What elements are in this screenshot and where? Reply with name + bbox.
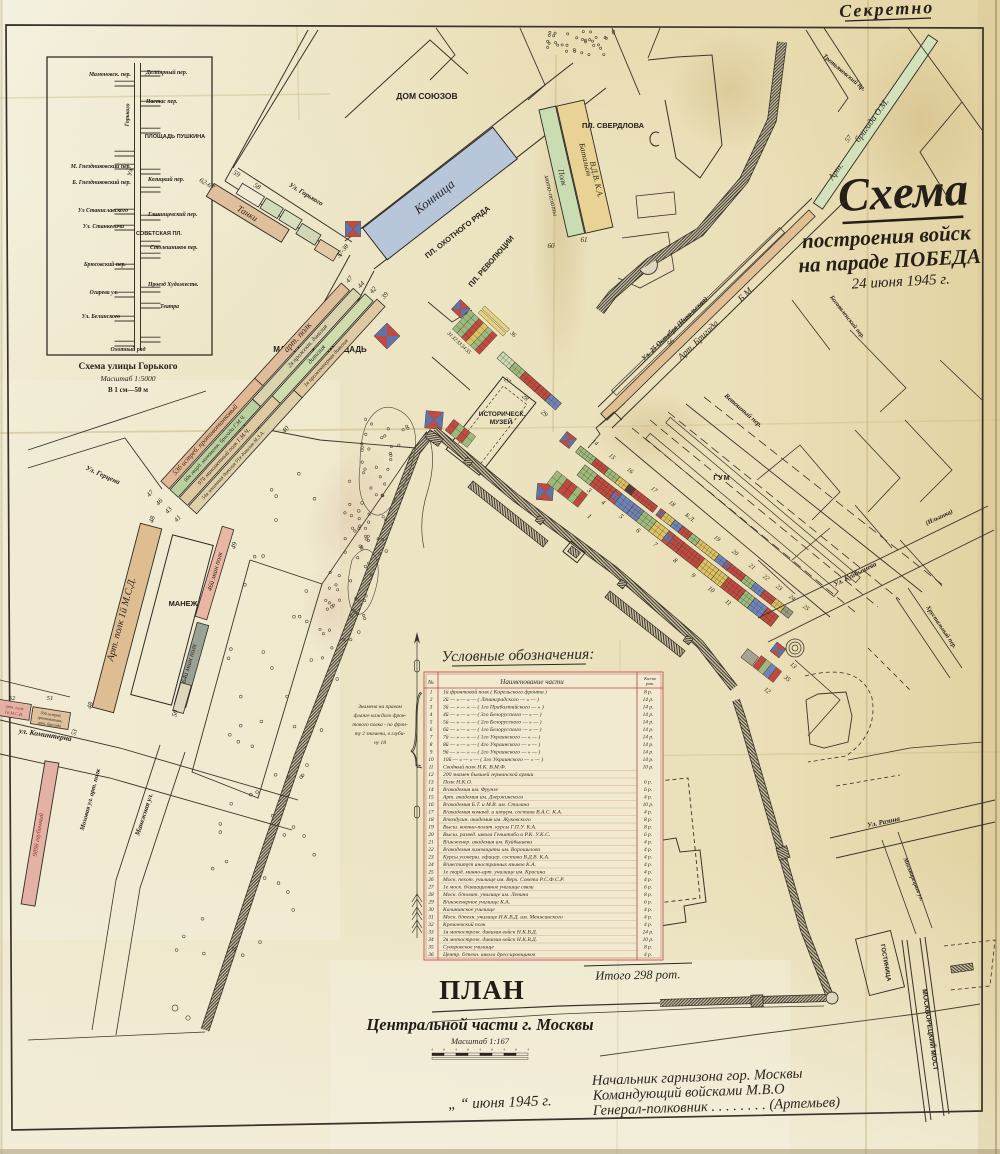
- svg-text:3: 3: [430, 705, 433, 711]
- svg-text:6 р.: 6 р.: [644, 780, 652, 786]
- svg-text:7: 7: [430, 735, 433, 741]
- svg-text:27: 27: [428, 885, 434, 891]
- svg-text:4 р.: 4 р.: [644, 855, 652, 861]
- svg-text:Дегтярный пер.: Дегтярный пер.: [145, 69, 187, 76]
- svg-text:4: 4: [431, 1048, 433, 1052]
- svg-text:Столешников пер.: Столешников пер.: [150, 245, 198, 251]
- svg-text:14: 14: [428, 786, 434, 793]
- svg-text:200 знамен бывшей германской а: 200 знамен бывшей германской армии: [443, 771, 534, 778]
- svg-text:2я мотострелк. дивизия войск: 2я мотострелк. дивизия войск Н.К.В.Д.: [443, 936, 537, 943]
- svg-text:Центральной части г. Москвы: Центральной части г. Москвы: [365, 1015, 593, 1034]
- svg-text:Сводный полк Н.К. В.М.Ф.: Сводный полк Н.К. В.М.Ф.: [443, 764, 506, 771]
- svg-text:1й фронтовой полк ( Карельског: 1й фронтовой полк ( Карельского фронта ): [443, 689, 547, 696]
- svg-text:Моск. пехот. училище им. Верх.: Моск. пехот. училище им. Верх. Совета Р.…: [442, 877, 564, 883]
- svg-text:В/академия им. Фрунзе: В/академия им. Фрунзе: [443, 786, 498, 793]
- svg-text:6 р.: 6 р.: [644, 885, 652, 891]
- svg-text:21: 21: [428, 840, 434, 846]
- svg-text:рот.: рот.: [645, 681, 654, 686]
- svg-text:4 р.: 4 р.: [644, 862, 652, 868]
- svg-text:22: 22: [428, 847, 434, 853]
- svg-text:ПЛОЩАДЬ ПУШКИНА: ПЛОЩАДЬ ПУШКИНА: [145, 134, 205, 140]
- svg-text:28: 28: [428, 892, 434, 898]
- svg-text:8: 8: [515, 1048, 517, 1052]
- svg-text:ГУМ: ГУМ: [713, 475, 730, 482]
- svg-text:4: 4: [430, 711, 433, 718]
- svg-text:ту 2 знамени, в глуби-: ту 2 знамени, в глуби-: [355, 730, 406, 737]
- svg-text:ПЛ. СВЕРДЛОВА: ПЛ. СВЕРДЛОВА: [582, 121, 645, 130]
- svg-text:24 р.: 24 р.: [643, 930, 654, 936]
- svg-text:12: 12: [428, 772, 434, 778]
- svg-text:10й — » — « — ( 3го Украинск: 10й — » — « — ( 3го Украинского — » — ): [443, 756, 543, 763]
- svg-text:В/академия химзащиты им. Во: В/академия химзащиты им. Ворошилова: [443, 846, 540, 853]
- svg-text:10 р.: 10 р.: [643, 765, 654, 771]
- svg-text:ДОМ СОЮЗОВ: ДОМ СОЮЗОВ: [396, 91, 457, 101]
- svg-text:МАНЕЖ: МАНЕЖ: [169, 599, 198, 608]
- svg-text:11: 11: [429, 765, 434, 771]
- svg-text:10 р.: 10 р.: [643, 802, 654, 808]
- svg-text:14 р.: 14 р.: [643, 735, 654, 741]
- svg-text:5: 5: [430, 720, 433, 726]
- svg-text:1е моск. б/авиационное училищ: 1е моск. б/авиационное училище связи: [443, 884, 534, 891]
- svg-text:Проезд Художеств.: Проезд Художеств.: [147, 281, 198, 288]
- svg-text:2: 2: [430, 697, 433, 703]
- svg-text:14 р.: 14 р.: [643, 757, 654, 763]
- svg-text:18: 18: [428, 817, 434, 823]
- svg-text:Высш. развед. школа Генштаба и: Высш. развед. школа Генштаба и Р.К. У.К.…: [443, 831, 550, 838]
- svg-text:Масштаб 1:167: Масштаб 1:167: [450, 1036, 510, 1046]
- svg-text:14 р.: 14 р.: [643, 727, 654, 733]
- svg-text:тового полка - по фрон-: тового полка - по фрон-: [352, 721, 408, 728]
- svg-text:В/инженерное училище К.А.: В/инженерное училище К.А.: [443, 900, 510, 906]
- svg-text:Брюсовский пер.: Брюсовский пер.: [83, 261, 126, 268]
- svg-text:8 р.: 8 р.: [644, 817, 652, 823]
- svg-text:Моск. б/техн. училище Н.К.В.Д: Моск. б/техн. училище Н.К.В.Д. им. Менжи…: [442, 914, 563, 921]
- svg-text:26: 26: [428, 877, 434, 883]
- svg-text:31: 31: [428, 915, 434, 921]
- svg-text:4 р.: 4 р.: [644, 907, 652, 913]
- svg-text:17: 17: [428, 810, 434, 816]
- svg-text:1е гвард. минно-арт. училище: 1е гвард. минно-арт. училище им. Красина: [443, 869, 545, 876]
- svg-text:36: 36: [428, 952, 434, 958]
- svg-text:Центр. б/техн. школа дрессир: Центр. б/техн. школа дрессировщиков: [442, 951, 536, 958]
- svg-text:Знамена на правом: Знамена на правом: [358, 704, 402, 710]
- svg-text:В 1 см—50 м: В 1 см—50 м: [108, 386, 148, 394]
- svg-text:Курсы усоверш. офицер. состава: Курсы усоверш. офицер. состава В.Д.В. К.…: [442, 854, 549, 861]
- svg-text:33: 33: [428, 930, 434, 936]
- svg-text:4: 4: [527, 1048, 529, 1052]
- svg-text:25: 25: [428, 870, 434, 876]
- svg-text:Горького: Горького: [125, 103, 132, 127]
- svg-text:Итого 298 рот.: Итого 298 рот.: [594, 967, 680, 983]
- svg-text:9й — » — » — ( 2го Украинск: 9й — » — » — ( 2го Украинского — » — ): [443, 749, 540, 756]
- svg-text:Суворовское училище: Суворовское училище: [443, 945, 494, 951]
- svg-text:30: 30: [428, 907, 434, 913]
- svg-text:2й — « — » — ( Ленинградско: 2й — « — » — ( Ленинградского — « — ): [443, 696, 539, 703]
- svg-text:Охотный ряд: Охотный ряд: [110, 346, 145, 353]
- svg-text:14 р.: 14 р.: [643, 720, 654, 726]
- svg-text:4: 4: [503, 1048, 505, 1052]
- svg-text:Условные обозначения:: Условные обозначения:: [441, 646, 594, 666]
- svg-text:8: 8: [491, 1048, 493, 1052]
- svg-text:61: 61: [581, 236, 588, 244]
- svg-text:Глинищевский пер.: Глинищевский пер.: [147, 211, 197, 218]
- svg-text:4 р.: 4 р.: [644, 922, 652, 928]
- svg-text:16: 16: [428, 802, 434, 808]
- svg-text:60: 60: [548, 242, 556, 250]
- svg-text:4й — » — » — ( 3го Белорусс: 4й — » — » — ( 3го Белорусского — « — ): [443, 711, 542, 718]
- svg-text:5й — « — » — ( 2го Белорусс: 5й — « — » — ( 2го Белорусского — » — ): [443, 719, 542, 726]
- svg-text:14 р.: 14 р.: [643, 712, 654, 718]
- svg-text:10: 10: [428, 757, 434, 763]
- svg-text:8: 8: [443, 1048, 445, 1052]
- svg-text:20: 20: [428, 832, 434, 838]
- svg-text:6 р.: 6 р.: [644, 832, 652, 838]
- svg-text:14 р.: 14 р.: [643, 742, 654, 748]
- svg-text:Театра: Театра: [160, 304, 179, 310]
- svg-text:Моск. б/полит. училище им.: Моск. б/полит. училище им. Ленина: [442, 891, 528, 898]
- svg-text:10 р.: 10 р.: [643, 937, 654, 943]
- svg-text:В/институт иностранных языко: В/институт иностранных языков К.А.: [443, 862, 536, 868]
- svg-text:4 р.: 4 р.: [644, 847, 652, 853]
- svg-text:Высш. военно-полит. курсы Г.П: Высш. военно-полит. курсы Г.П.У. К.А.: [443, 825, 536, 831]
- svg-text:6 р.: 6 р.: [644, 787, 652, 793]
- svg-text:Арт. академия им. Дзержинско: Арт. академия им. Дзержинского: [442, 794, 523, 801]
- svg-text:32: 32: [428, 922, 434, 928]
- svg-text:№: №: [427, 680, 434, 686]
- svg-text:В/инженер. академия им. Куйб: В/инженер. академия им. Куйбышева: [443, 839, 532, 846]
- svg-text:Ул Станиславского: Ул Станиславского: [78, 208, 128, 214]
- svg-text:8: 8: [467, 1048, 469, 1052]
- svg-text:Б. Гнездниковский пер.: Б. Гнездниковский пер.: [71, 179, 131, 186]
- svg-text:14 р.: 14 р.: [643, 750, 654, 756]
- svg-text:Калининское училище: Калининское училище: [442, 907, 495, 913]
- svg-text:51: 51: [47, 695, 54, 702]
- svg-text:Мамоновск. пер.: Мамоновск. пер.: [88, 72, 131, 78]
- svg-text:14 р.: 14 р.: [643, 705, 654, 711]
- svg-text:23: 23: [428, 855, 434, 861]
- svg-text:фланге каждого фрон-: фланге каждого фрон-: [354, 712, 407, 719]
- svg-text:Схема улицы Горького: Схема улицы Горького: [79, 362, 178, 372]
- svg-text:ИСТОРИЧЕСК.: ИСТОРИЧЕСК.: [479, 411, 526, 418]
- svg-text:13: 13: [428, 780, 434, 786]
- svg-text:7й — » — » — ( 1го Украинск: 7й — » — » — ( 1го Украинского — » — ): [443, 734, 540, 741]
- svg-text:4 р.: 4 р.: [644, 952, 652, 958]
- svg-text:34: 34: [428, 936, 434, 943]
- svg-text:35: 35: [428, 945, 434, 951]
- svg-text:Масштаб 1:5000: Масштаб 1:5000: [99, 374, 155, 383]
- svg-text:Настас пер.: Настас пер.: [145, 99, 178, 105]
- svg-text:1я мотострелк. дивизия войск: 1я мотострелк. дивизия войск Н.К.В.Д.: [443, 929, 537, 936]
- svg-text:4 р.: 4 р.: [644, 840, 652, 846]
- svg-text:24: 24: [428, 861, 434, 868]
- svg-text:9: 9: [430, 750, 433, 756]
- svg-text:4 р.: 4 р.: [644, 877, 652, 883]
- svg-text:Наименование части: Наименование части: [499, 678, 564, 686]
- svg-text:В/воздушн. академия им. Жуко: В/воздушн. академия им. Жуковского: [443, 816, 531, 823]
- svg-text:3й — » — « — ( 1го Прибалти: 3й — » — « — ( 1го Прибалтийского — » ): [442, 704, 544, 711]
- svg-text:1: 1: [430, 690, 433, 696]
- svg-text:В/академия Б.Т. и М.В. им.: В/академия Б.Т. и М.В. им. Сталина: [443, 801, 529, 808]
- svg-text:8й — « — » — ( 4го Украинск: 8й — « — » — ( 4го Украинского — « — ): [443, 741, 540, 748]
- svg-text:4 р.: 4 р.: [644, 870, 652, 876]
- svg-text:19: 19: [428, 825, 434, 831]
- svg-text:ну 18: ну 18: [374, 740, 386, 746]
- svg-text:Схема: Схема: [837, 163, 970, 222]
- svg-text:Огарева ул.: Огарева ул.: [90, 290, 118, 296]
- svg-text:8 р.: 8 р.: [644, 892, 652, 898]
- svg-text:СОВЕТСКАЯ ПЛ.: СОВЕТСКАЯ ПЛ.: [136, 231, 182, 237]
- svg-text:Ул. Станкевича: Ул. Станкевича: [83, 224, 124, 230]
- svg-text:В/академия команд. и штурм. со: В/академия команд. и штурм. состава В.А.…: [443, 809, 562, 816]
- svg-text:Кремлевский полк: Кремлевский полк: [442, 921, 486, 928]
- svg-text:8 р.: 8 р.: [644, 690, 652, 696]
- svg-text:8 р.: 8 р.: [644, 825, 652, 831]
- svg-text:4 р.: 4 р.: [644, 810, 652, 816]
- svg-text:6й — » — « — ( 1го Белорусс: 6й — » — « — ( 1го Белорусского — « — ): [443, 726, 542, 733]
- svg-text:Ул. Белинского: Ул. Белинского: [82, 314, 120, 320]
- svg-text:МУЗЕЙ: МУЗЕЙ: [490, 417, 513, 426]
- svg-text:М. Гнездниковский пер.: М. Гнездниковский пер.: [70, 163, 131, 170]
- svg-text:6 р.: 6 р.: [644, 900, 652, 906]
- svg-text:29: 29: [428, 900, 434, 906]
- svg-text:15: 15: [428, 795, 434, 801]
- svg-text:4: 4: [455, 1048, 457, 1052]
- svg-text:52: 52: [9, 695, 16, 702]
- svg-text:4 р.: 4 р.: [644, 795, 652, 801]
- svg-text:4 р.: 4 р.: [644, 915, 652, 921]
- svg-text:ПЛАН: ПЛАН: [439, 975, 525, 1005]
- svg-text:14 р.: 14 р.: [643, 697, 654, 703]
- svg-text:4: 4: [479, 1048, 481, 1052]
- svg-text:8: 8: [430, 742, 433, 748]
- svg-text:Козицкий пер.: Козицкий пер.: [147, 176, 184, 183]
- svg-text:8 р.: 8 р.: [644, 945, 652, 951]
- svg-text:Полк Н.К.О.: Полк Н.К.О.: [442, 780, 472, 786]
- svg-text:6: 6: [430, 727, 433, 733]
